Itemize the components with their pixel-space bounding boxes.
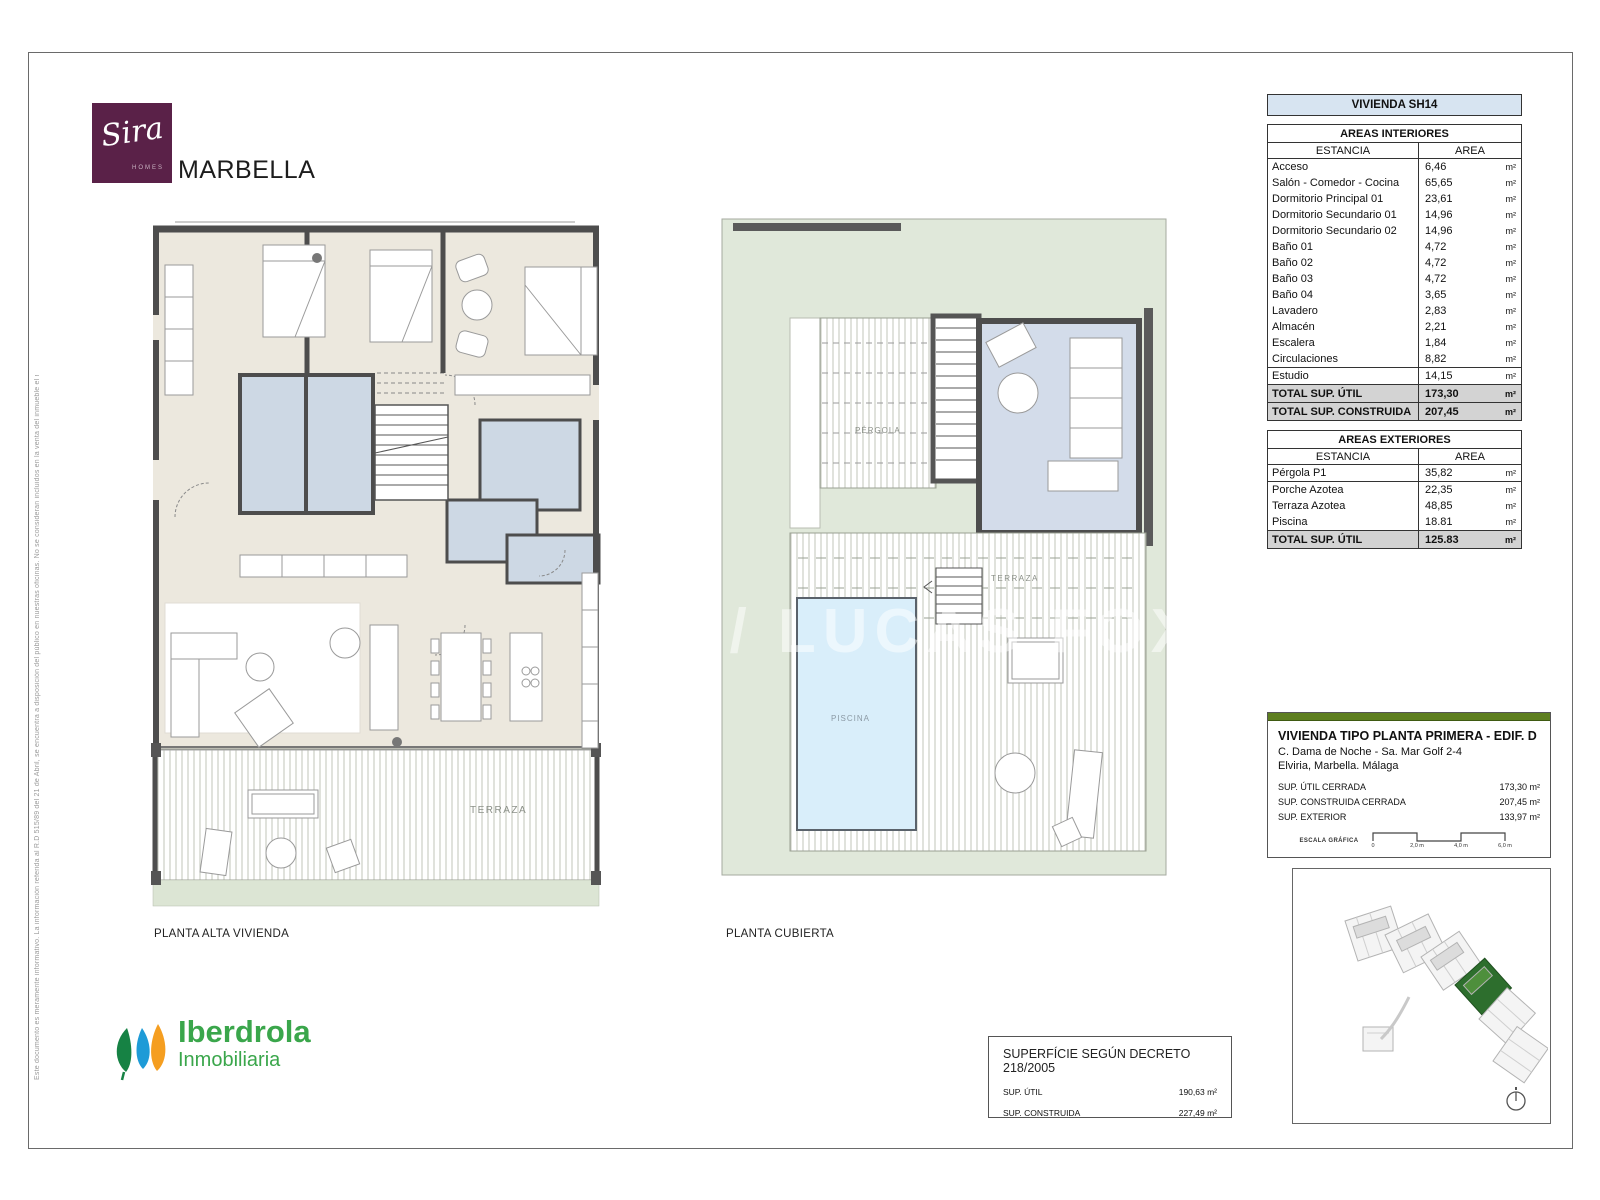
table-cell: 227,49 m² [1080,1108,1217,1118]
table-cell: Baño 02 [1268,255,1419,271]
table-cell: Piscina [1268,514,1419,530]
plan-caption-upper: PLANTA ALTA VIVIENDA [154,928,289,940]
table-cell: m² [1483,226,1521,236]
table-row: Circulaciones8,82m² [1268,351,1521,367]
table-row: TOTAL SUP. ÚTIL173,30m² [1268,384,1521,402]
site-plan-drawing [1293,869,1548,1121]
table-row: SUP. ÚTIL190,63 m² [1003,1081,1217,1102]
scale-bar-graphic: 0 2,0 m 4,0 m 6,0 m [1367,828,1519,848]
table-cell: 125.83 [1419,534,1483,546]
table-cell: 3,65 [1419,289,1483,301]
table-cell: SUP. CONSTRUIDA [1003,1108,1080,1118]
iberdrola-logo: Iberdrola Inmobiliaria [112,1016,311,1082]
table-row: Piscina18.81m² [1268,514,1521,530]
table-cell: Baño 01 [1268,239,1419,255]
decreto-rows: SUP. ÚTIL190,63 m²SUP. CONSTRUIDA227,49 … [1003,1081,1217,1123]
table-cell: 173,30 m² [1366,782,1540,792]
table-cell: m² [1483,338,1521,348]
table-cell: 14,15 [1419,370,1483,382]
table-row: Acceso6,46m² [1268,159,1521,175]
table-cell: 14,96 [1419,225,1483,237]
iberdrola-sub: Inmobiliaria [178,1049,311,1071]
table-cell: 190,63 m² [1043,1087,1217,1097]
table-cell: 4,72 [1419,241,1483,253]
table-cell: m² [1483,258,1521,268]
table-cell: 18.81 [1419,516,1483,528]
info-box-title: VIVIENDA TIPO PLANTA PRIMERA - EDIF. D [1278,729,1540,743]
sira-logo-script: Sira [99,111,166,154]
info-box-address-line2: Elviria, Marbella. Málaga [1278,759,1540,773]
table-cell: m² [1483,162,1521,172]
table-cell: 4,72 [1419,257,1483,269]
table-row: SUP. ÚTIL CERRADA173,30 m² [1278,780,1540,795]
table-cell: 133,97 m² [1346,812,1540,822]
table-row: Porche Azotea22,35m² [1268,482,1521,498]
table-row: SUP. CONSTRUIDA227,49 m² [1003,1102,1217,1123]
iberdrola-wordmark: Iberdrola Inmobiliaria [178,1016,311,1071]
iberdrola-name: Iberdrola [178,1016,311,1049]
table-cell: m² [1483,210,1521,220]
scale-bar: ESCALA GRÁFICA 0 2,0 m 4,0 m 6,0 m [1268,828,1550,848]
table-row: Salón - Comedor - Cocina65,65m² [1268,175,1521,191]
terraza-label: TERRAZA [470,805,527,816]
table-cell: Dormitorio Principal 01 [1268,191,1419,207]
table-cell: Acceso [1268,159,1419,175]
svg-text:4,0 m: 4,0 m [1454,843,1468,848]
svg-text:0: 0 [1371,843,1374,848]
table-cell: m² [1483,371,1521,381]
table-row: Baño 043,65m² [1268,287,1521,303]
column-header-estancia: ESTANCIA [1268,143,1419,158]
table-cell: Dormitorio Secundario 02 [1268,223,1419,239]
table-cell: Circulaciones [1268,351,1419,367]
table-cell: Escalera [1268,335,1419,351]
column-header-area: AREA [1419,449,1521,464]
table-row: Almacén2,21m² [1268,319,1521,335]
table-row: Estudio14,15m² [1268,367,1521,384]
table-cell: Salón - Comedor - Cocina [1268,175,1419,191]
table-cell: 35,82 [1419,467,1483,479]
table-cell: m² [1483,517,1521,527]
table-cell: Lavadero [1268,303,1419,319]
sira-logo-sub: HOMES [132,165,164,171]
table-cell: 173,30 [1419,388,1483,400]
table-cell: Almacén [1268,319,1419,335]
floor-plan-upper-drawing: TERRAZA [145,205,615,910]
svg-text:2,0 m: 2,0 m [1410,843,1424,848]
table-header-row: ESTANCIA AREA [1268,449,1521,465]
plan-caption-roof: PLANTA CUBIERTA [726,928,834,940]
table-row: TOTAL SUP. ÚTIL125.83m² [1268,530,1521,548]
info-box-rows: SUP. ÚTIL CERRADA173,30 m²SUP. CONSTRUID… [1278,780,1540,825]
table-cell: m² [1483,535,1521,545]
table-cell: 207,45 m² [1406,797,1540,807]
table-title: AREAS INTERIORES [1268,125,1521,143]
pergola-label: PÉRGOLA [855,426,901,435]
table-row: Dormitorio Secundario 0114,96m² [1268,207,1521,223]
table-cell: TOTAL SUP. ÚTIL [1268,531,1419,548]
areas-exteriores-table: AREAS EXTERIORES ESTANCIA AREA Pérgola P… [1267,430,1522,549]
svg-text:6,0 m: 6,0 m [1498,843,1512,848]
site-plan [1292,868,1551,1124]
table-row: Dormitorio Secundario 0214,96m² [1268,223,1521,239]
table-row: TOTAL SUP. CONSTRUIDA207,45m² [1268,402,1521,420]
table-row: SUP. CONSTRUIDA CERRADA207,45 m² [1278,795,1540,810]
table-row: Baño 014,72m² [1268,239,1521,255]
table-row: Pérgola P135,82m² [1268,465,1521,482]
table-cell: m² [1483,290,1521,300]
watermark: LS / LUCAS FOX [612,596,1199,667]
decreto-title: SUPERFÍCIE SEGÚN DECRETO 218/2005 [1003,1047,1217,1075]
table-cell: TOTAL SUP. CONSTRUIDA [1268,403,1419,420]
table-body: Acceso6,46m²Salón - Comedor - Cocina65,6… [1268,159,1521,384]
table-title: AREAS EXTERIORES [1268,431,1521,449]
info-box: VIVIENDA TIPO PLANTA PRIMERA - EDIF. D C… [1267,712,1551,858]
table-cell: m² [1483,322,1521,332]
table-cell: 65,65 [1419,177,1483,189]
table-row: Escalera1,84m² [1268,335,1521,351]
table-totals: TOTAL SUP. ÚTIL173,30m²TOTAL SUP. CONSTR… [1268,384,1521,420]
table-row: Terraza Azotea48,85m² [1268,498,1521,514]
floor-plan-upper: TERRAZA [145,205,615,910]
table-cell: 8,82 [1419,353,1483,365]
info-box-green-bar [1268,713,1550,721]
table-cell: 48,85 [1419,500,1483,512]
table-cell: m² [1483,242,1521,252]
table-cell: Terraza Azotea [1268,498,1419,514]
table-cell: m² [1483,306,1521,316]
table-row: Dormitorio Principal 0123,61m² [1268,191,1521,207]
table-cell: 23,61 [1419,193,1483,205]
floor-plan-roof: PÉRGOLA TERRAZA PISCINA [718,213,1170,881]
table-cell: SUP. EXTERIOR [1278,812,1346,822]
floor-plan-roof-drawing: PÉRGOLA TERRAZA PISCINA [718,213,1170,881]
table-cell: Baño 03 [1268,271,1419,287]
table-cell: 1,84 [1419,337,1483,349]
iberdrola-flame-icon [112,1016,170,1082]
table-cell: 4,72 [1419,273,1483,285]
column-header-area: AREA [1419,143,1521,158]
table-cell: 6,46 [1419,161,1483,173]
scale-bar-label: ESCALA GRÁFICA [1299,838,1358,844]
sira-logo: Sira HOMES [92,103,172,183]
table-cell: m² [1483,485,1521,495]
areas-interiores-table: AREAS INTERIORES ESTANCIA AREA Acceso6,4… [1267,124,1522,421]
table-header-row: ESTANCIA AREA [1268,143,1521,159]
table-cell: 207,45 [1419,406,1483,418]
table-cell: 14,96 [1419,209,1483,221]
roof-terraza-label: TERRAZA [991,574,1039,583]
table-cell: TOTAL SUP. ÚTIL [1268,385,1419,402]
table-row: SUP. EXTERIOR133,97 m² [1278,810,1540,825]
table-cell: Porche Azotea [1268,482,1419,498]
table-cell: SUP. CONSTRUIDA CERRADA [1278,797,1406,807]
city-title: MARBELLA [178,156,315,185]
table-cell: m² [1483,389,1521,399]
table-cell: Baño 04 [1268,287,1419,303]
piscina-label: PISCINA [831,714,870,723]
decreto-box: SUPERFÍCIE SEGÚN DECRETO 218/2005 SUP. Ú… [988,1036,1232,1118]
north-compass-icon [1507,1087,1525,1110]
table-cell: Pérgola P1 [1268,465,1419,481]
table-cell: m² [1483,354,1521,364]
table-row: Baño 034,72m² [1268,271,1521,287]
table-cell: 2,21 [1419,321,1483,333]
table-row: Lavadero2,83m² [1268,303,1521,319]
table-cell: Estudio [1268,368,1419,384]
table-cell: m² [1483,501,1521,511]
table-cell: m² [1483,468,1521,478]
table-cell: m² [1483,274,1521,284]
table-cell: m² [1483,407,1521,417]
table-cell: Dormitorio Secundario 01 [1268,207,1419,223]
unit-header: VIVIENDA SH14 [1267,94,1522,116]
info-box-address-line1: C. Dama de Noche - Sa. Mar Golf 2-4 [1278,745,1540,759]
table-cell: SUP. ÚTIL CERRADA [1278,782,1366,792]
table-cell: m² [1483,178,1521,188]
column-header-estancia: ESTANCIA [1268,449,1419,464]
table-cell: 22,35 [1419,484,1483,496]
table-cell: SUP. ÚTIL [1003,1087,1043,1097]
table-totals: TOTAL SUP. ÚTIL125.83m² [1268,530,1521,548]
table-cell: m² [1483,194,1521,204]
table-body: Pérgola P135,82m²Porche Azotea22,35m²Ter… [1268,465,1521,530]
table-cell: 2,83 [1419,305,1483,317]
table-row: Baño 024,72m² [1268,255,1521,271]
legal-disclaimer: Este documento es meramente informativo.… [34,375,41,1080]
